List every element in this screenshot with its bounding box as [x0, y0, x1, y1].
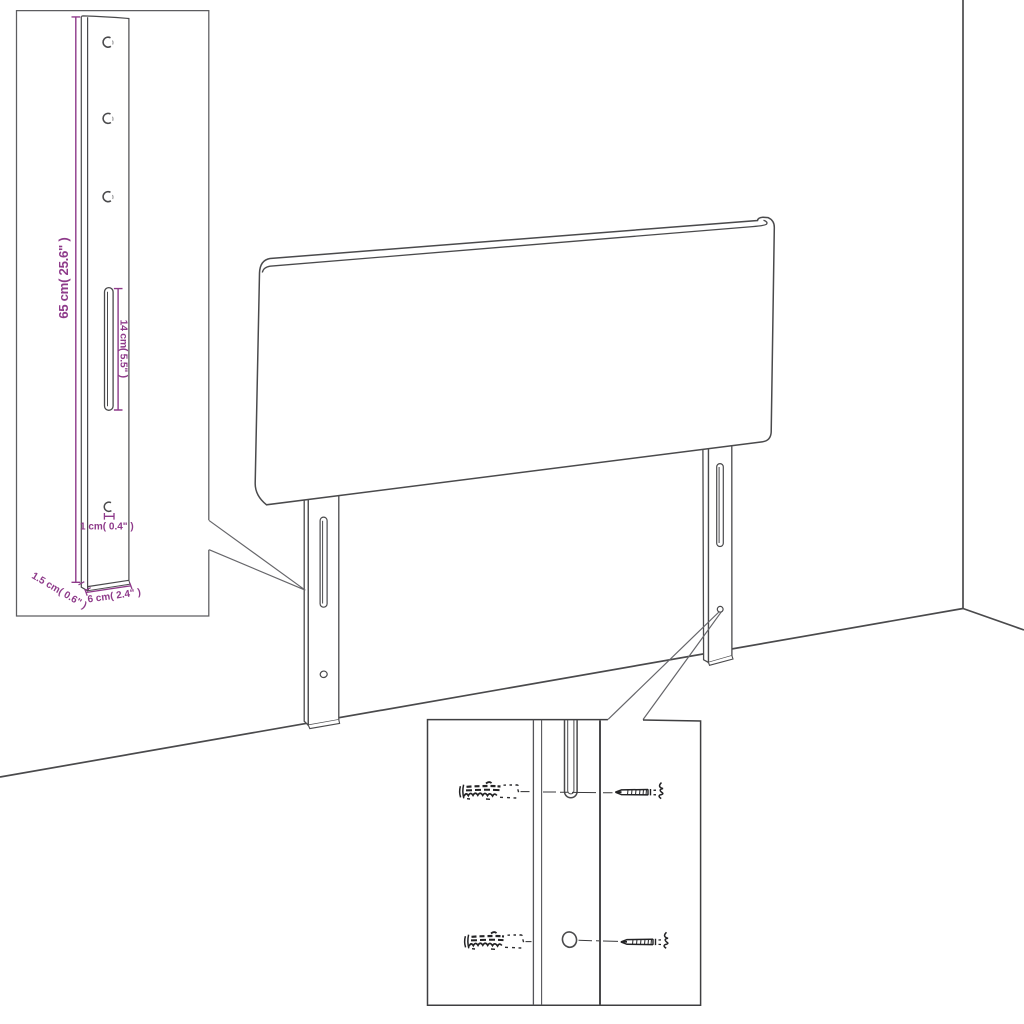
svg-text:1 cm( 0.4" ): 1 cm( 0.4" ) — [80, 522, 134, 533]
svg-text:65 cm( 25.6" ): 65 cm( 25.6" ) — [56, 238, 71, 319]
svg-text:14 cm( 5.5" ): 14 cm( 5.5" ) — [117, 320, 129, 378]
